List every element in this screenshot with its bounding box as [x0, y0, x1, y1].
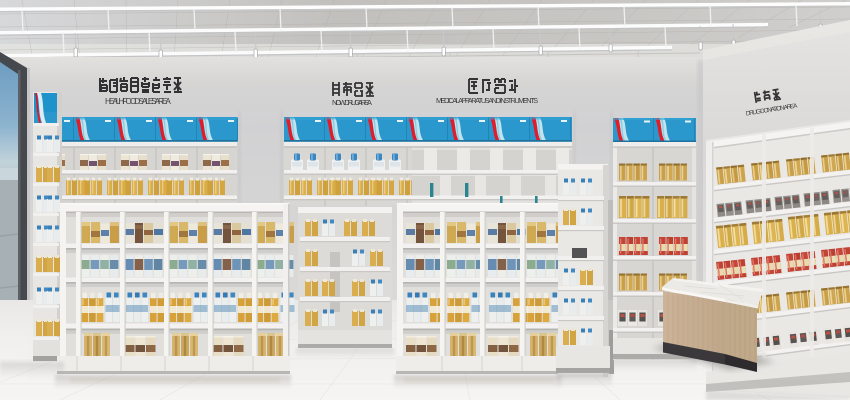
svg-text:HEALH FOOD SALES AREA: HEALH FOOD SALES AREA	[105, 97, 171, 106]
svg-text:NOW DRUG AREA: NOW DRUG AREA	[332, 98, 373, 107]
svg-text:MEDICAL APPARATUS AND INSTRUME: MEDICAL APPARATUS AND INSTRUMENTS	[436, 96, 538, 105]
